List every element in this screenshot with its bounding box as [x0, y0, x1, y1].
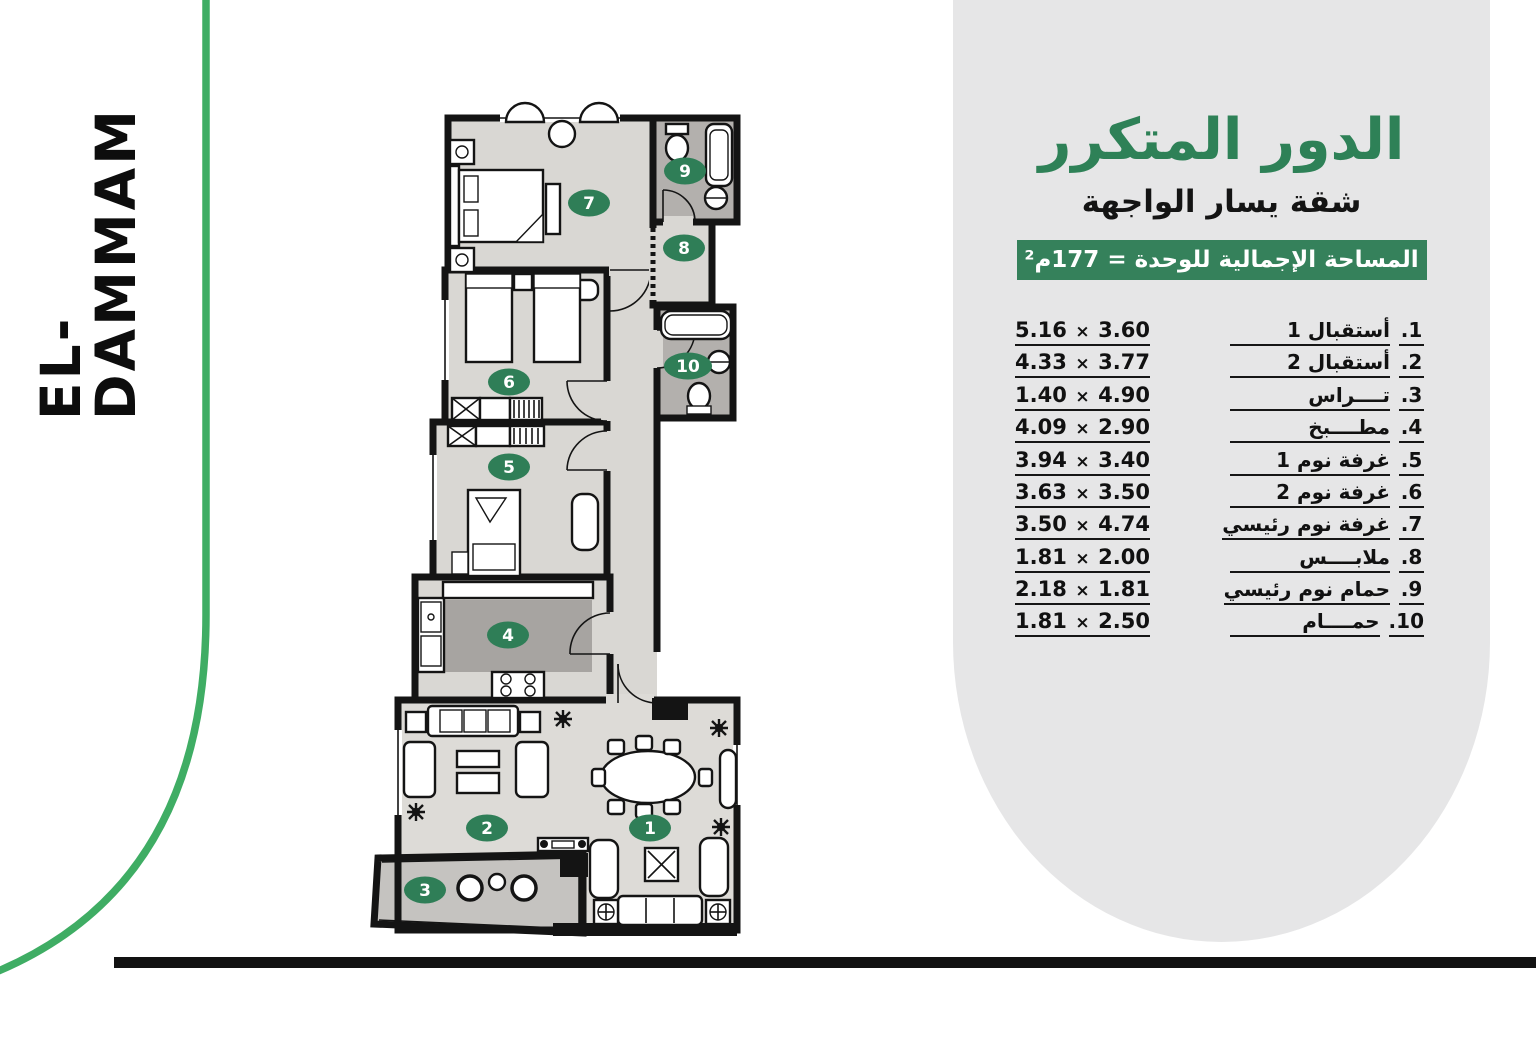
- info-panel: الدور المتكرر شقة يسار الواجهة المساحة ا…: [953, 0, 1490, 942]
- room-row-2: 4.33×3.77 2.أستقبال 2: [1015, 346, 1424, 378]
- room-name: مطــــبخ: [1230, 415, 1390, 443]
- dim-b: 3.77: [1098, 350, 1150, 374]
- dim-b: 2.90: [1098, 415, 1150, 439]
- room-name: ملابــــس: [1230, 545, 1390, 573]
- room-dimensions: 2.18×1.81: [1015, 577, 1150, 605]
- room-index: 8.: [1399, 545, 1424, 573]
- room-row-4: 4.09×2.90 4.مطــــبخ: [1015, 411, 1424, 443]
- room-badge-6: 6: [503, 373, 515, 393]
- room-row-1: 5.16×3.60 1.أستقبال 1: [1015, 314, 1424, 346]
- toilet-icon: [688, 383, 710, 409]
- room-index: 9.: [1399, 577, 1424, 605]
- room-index: 1.: [1399, 318, 1424, 346]
- room-name: حمــــام: [1230, 609, 1380, 637]
- room-badge-2: 2: [481, 819, 493, 839]
- room-index: 5.: [1399, 448, 1424, 476]
- chaise-icon: [720, 750, 736, 808]
- dim-b: 2.50: [1098, 609, 1150, 633]
- room-index: 6.: [1399, 480, 1424, 508]
- brand-logo: EL-DAMMAM: [34, 40, 144, 420]
- loveseat-icon: [590, 840, 618, 898]
- bed-headboard: [450, 166, 459, 246]
- poster-root: { "brand": { "logo_text": "EL-DAMMAM" },…: [0, 0, 1536, 1057]
- dim-a: 1.81: [1015, 545, 1067, 569]
- room-name: غرفة نوم 1: [1230, 448, 1390, 476]
- dim-a: 3.94: [1015, 448, 1067, 472]
- room-name: تــــراس: [1230, 383, 1390, 411]
- dim-a: 1.40: [1015, 383, 1067, 407]
- multiply-symbol: ×: [1075, 354, 1089, 374]
- room-badge-9: 9: [679, 162, 691, 182]
- multiply-symbol: ×: [1075, 452, 1089, 472]
- dim-a: 3.63: [1015, 480, 1067, 504]
- dim-a: 1.81: [1015, 609, 1067, 633]
- floor-plan: 1 2 3 4 5 6 7 8 9 10: [360, 100, 750, 950]
- room-dimensions: 3.50×4.74: [1015, 512, 1150, 540]
- multiply-symbol: ×: [1075, 484, 1089, 504]
- dim-a: 2.18: [1015, 577, 1067, 601]
- multiply-symbol: ×: [1075, 322, 1089, 342]
- dim-a: 5.16: [1015, 318, 1067, 342]
- multiply-symbol: ×: [1075, 419, 1089, 439]
- room-dimensions: 4.33×3.77: [1015, 350, 1150, 378]
- room-badge-1: 1: [644, 819, 656, 839]
- dim-b: 1.81: [1098, 577, 1150, 601]
- room-row-8: 1.81×2.00 8.ملابــــس: [1015, 540, 1424, 572]
- room-row-7: 3.50×4.74 7.غرفة نوم رئيسي: [1015, 508, 1424, 540]
- dim-b: 3.50: [1098, 480, 1150, 504]
- room-row-6: 3.63×3.50 6.غرفة نوم 2: [1015, 476, 1424, 508]
- room-list: 5.16×3.60 1.أستقبال 1 4.33×3.77 2.أستقبا…: [1015, 314, 1424, 638]
- room-row-5: 3.94×3.40 5.غرفة نوم 1: [1015, 443, 1424, 475]
- terrace-chair-icon: [458, 876, 482, 900]
- wardrobe-fan-icon: [506, 103, 544, 122]
- stove-icon: [492, 672, 544, 698]
- room-badge-7: 7: [583, 194, 595, 214]
- armchair-icon: [404, 742, 435, 797]
- room-badge-3: 3: [419, 881, 431, 901]
- room-dimensions: 1.81×2.50: [1015, 609, 1150, 637]
- room-index: 3.: [1399, 383, 1424, 411]
- sofa-icon: [618, 896, 702, 925]
- toilet-icon: [666, 135, 688, 161]
- room-dimensions: 5.16×3.60: [1015, 318, 1150, 346]
- dim-b: 2.00: [1098, 545, 1150, 569]
- page-subtitle: شقة يسار الواجهة: [953, 184, 1490, 220]
- room-badge-10: 10: [676, 357, 700, 377]
- dim-b: 4.90: [1098, 383, 1150, 407]
- room-name: أستقبال 2: [1230, 350, 1390, 378]
- multiply-symbol: ×: [1075, 613, 1089, 633]
- room-badge-4: 4: [502, 626, 514, 646]
- room-dimensions: 3.94×3.40: [1015, 448, 1150, 476]
- room-dimensions: 4.09×2.90: [1015, 415, 1150, 443]
- room-row-9: 2.18×1.81 9.حمام نوم رئيسي: [1015, 573, 1424, 605]
- total-area-banner: المساحة الإجمالية للوحدة = 177م²: [1017, 240, 1427, 280]
- room-dimensions: 1.81×2.00: [1015, 545, 1150, 573]
- footer-rule: [114, 957, 1536, 968]
- room-index: 4.: [1399, 415, 1424, 443]
- multiply-symbol: ×: [1075, 581, 1089, 601]
- room-name: أستقبال 1: [1230, 318, 1390, 346]
- room-row-3: 1.40×4.90 3.تــــراس: [1015, 378, 1424, 410]
- room-badge-5: 5: [503, 458, 515, 478]
- room-name: حمام نوم رئيسي: [1224, 577, 1390, 605]
- living-room-furniture: [404, 706, 548, 797]
- multiply-symbol: ×: [1075, 549, 1089, 569]
- armchair-icon: [572, 494, 598, 550]
- dim-a: 4.09: [1015, 415, 1067, 439]
- dim-a: 3.50: [1015, 512, 1067, 536]
- multiply-symbol: ×: [1075, 516, 1089, 536]
- room-name: غرفة نوم رئيسي: [1222, 512, 1390, 540]
- page-title: الدور المتكرر: [953, 108, 1490, 174]
- dining-table-icon: [601, 751, 695, 803]
- dim-b: 4.74: [1098, 512, 1150, 536]
- dim-b: 3.60: [1098, 318, 1150, 342]
- coffee-table: [457, 751, 499, 767]
- dim-a: 4.33: [1015, 350, 1067, 374]
- room-dimensions: 1.40×4.90: [1015, 383, 1150, 411]
- terrace-table-icon: [489, 874, 505, 890]
- room-name: غرفة نوم 2: [1230, 480, 1390, 508]
- room-index: 10.: [1389, 609, 1424, 637]
- room-badge-8: 8: [678, 239, 690, 259]
- dim-b: 3.40: [1098, 448, 1150, 472]
- room-index: 2.: [1399, 350, 1424, 378]
- room-row-10: 1.81×2.50 10.حمــــام: [1015, 605, 1424, 637]
- room-index: 7.: [1399, 512, 1424, 540]
- room-dimensions: 3.63×3.50: [1015, 480, 1150, 508]
- multiply-symbol: ×: [1075, 387, 1089, 407]
